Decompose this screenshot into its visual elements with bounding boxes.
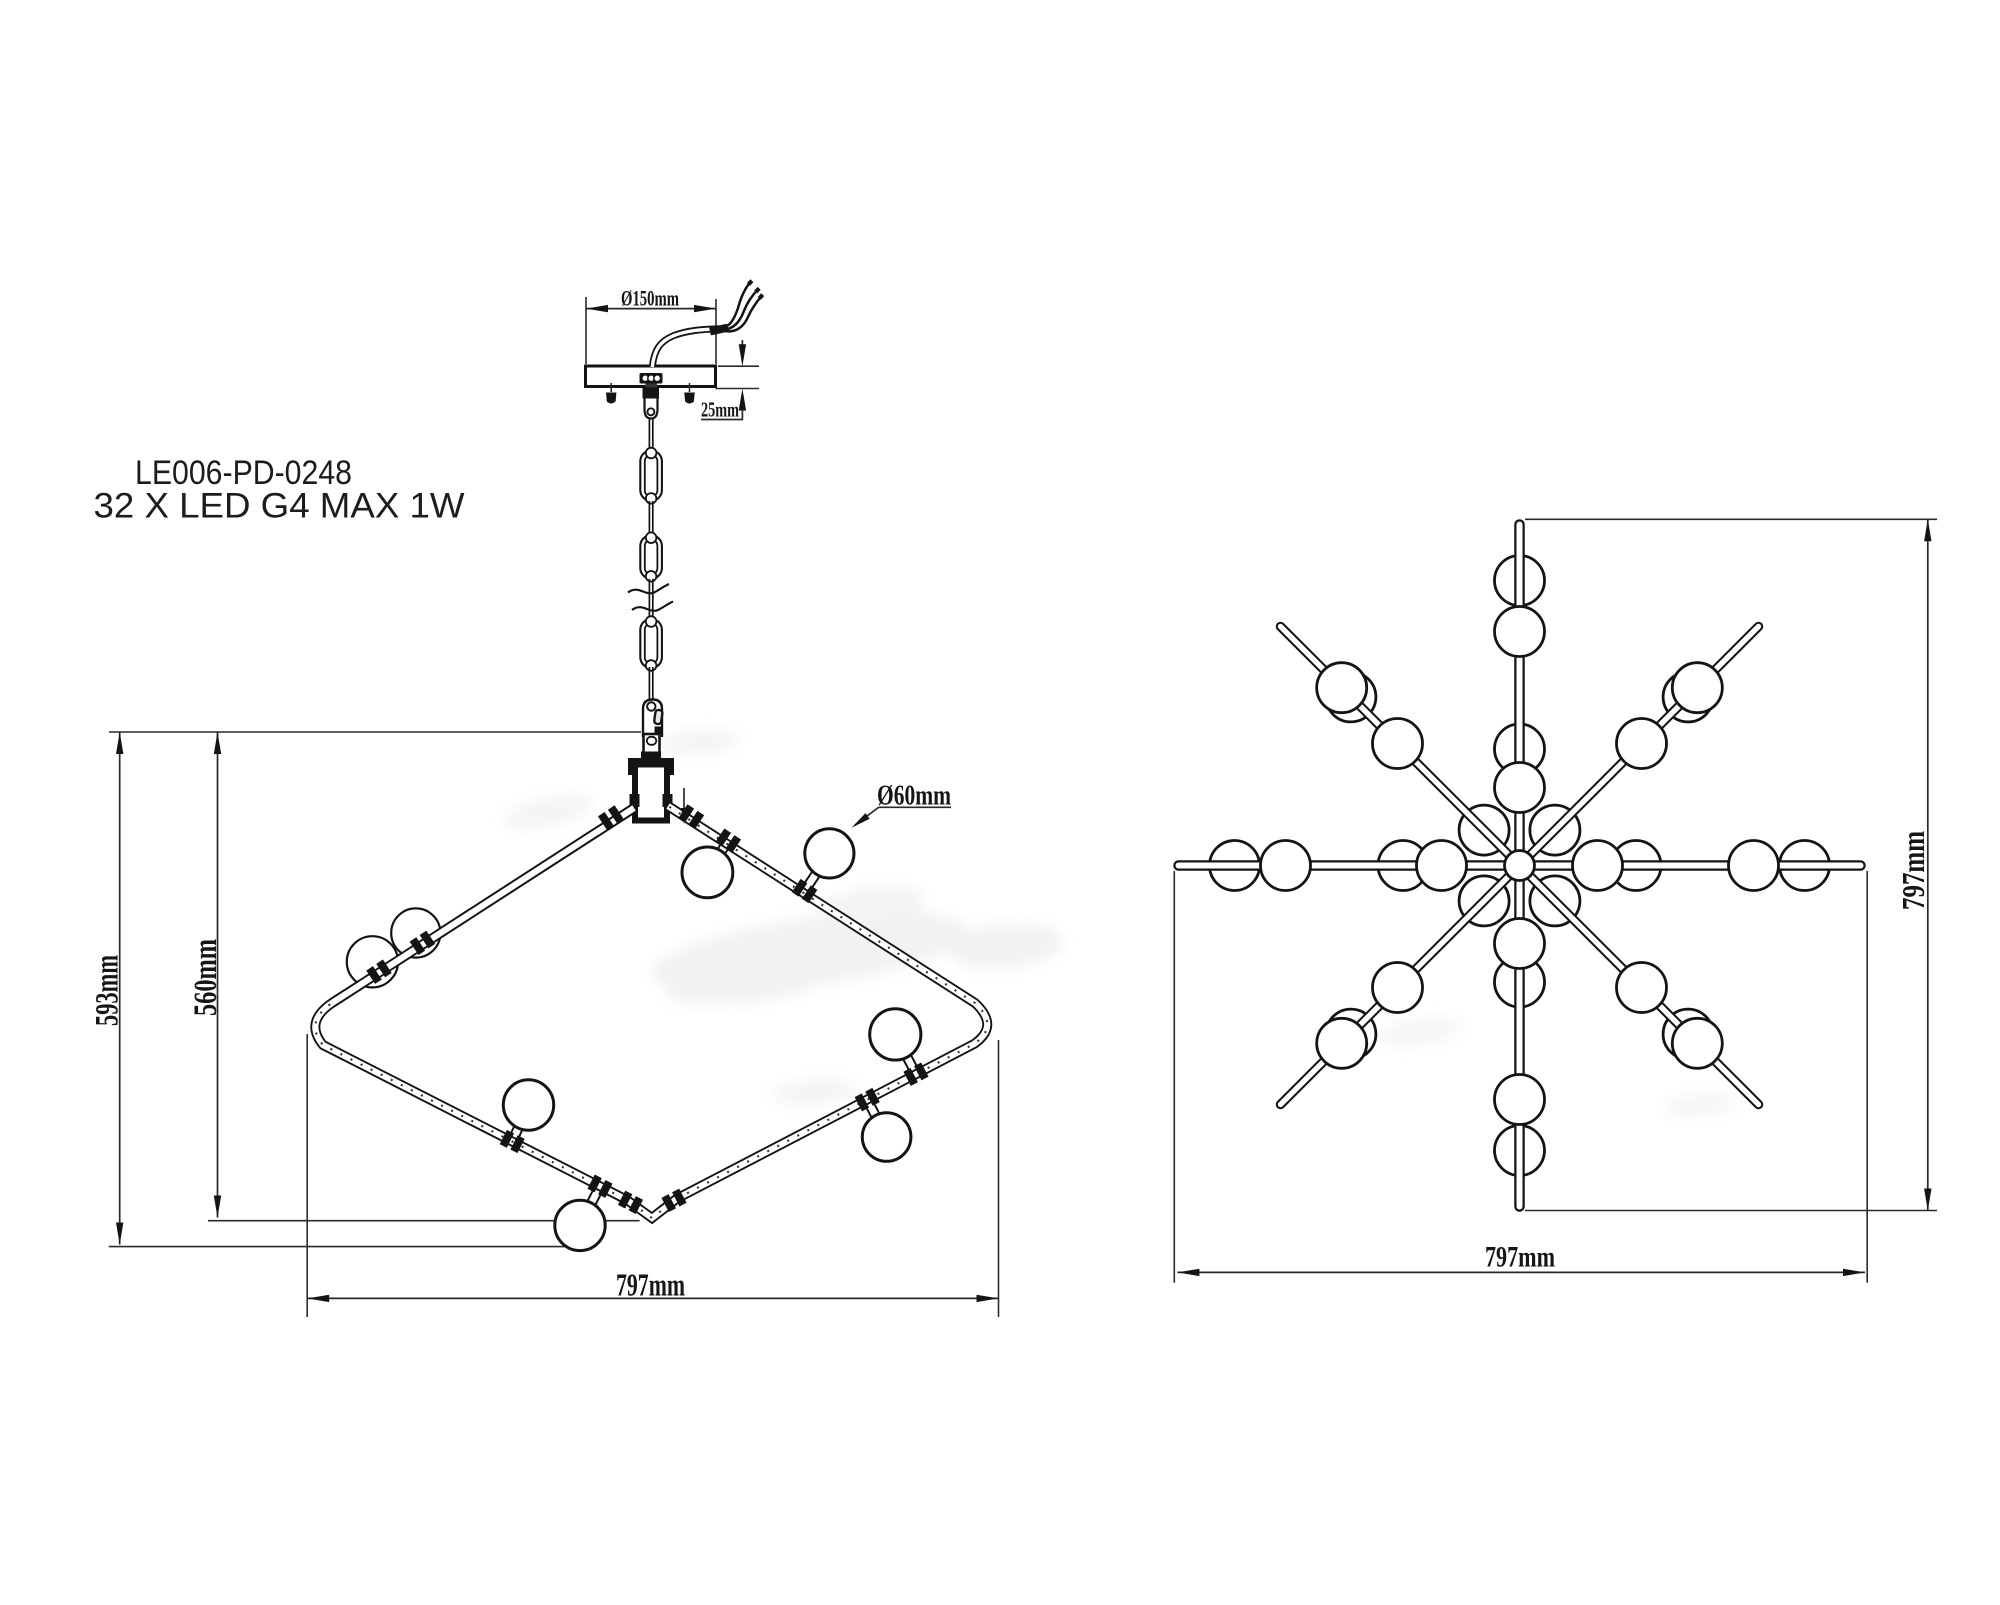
svg-text:Ø60mm: Ø60mm [877,780,951,812]
svg-text:797mm: 797mm [1485,1241,1555,1274]
svg-text:797mm: 797mm [1895,831,1931,910]
svg-text:25mm: 25mm [701,398,739,422]
svg-text:797mm: 797mm [616,1267,685,1303]
svg-text:32 X LED G4 MAX 1W: 32 X LED G4 MAX 1W [94,486,466,526]
svg-text:593mm: 593mm [90,955,126,1026]
svg-text:Ø150mm: Ø150mm [621,286,679,311]
svg-text:560mm: 560mm [188,939,224,1016]
